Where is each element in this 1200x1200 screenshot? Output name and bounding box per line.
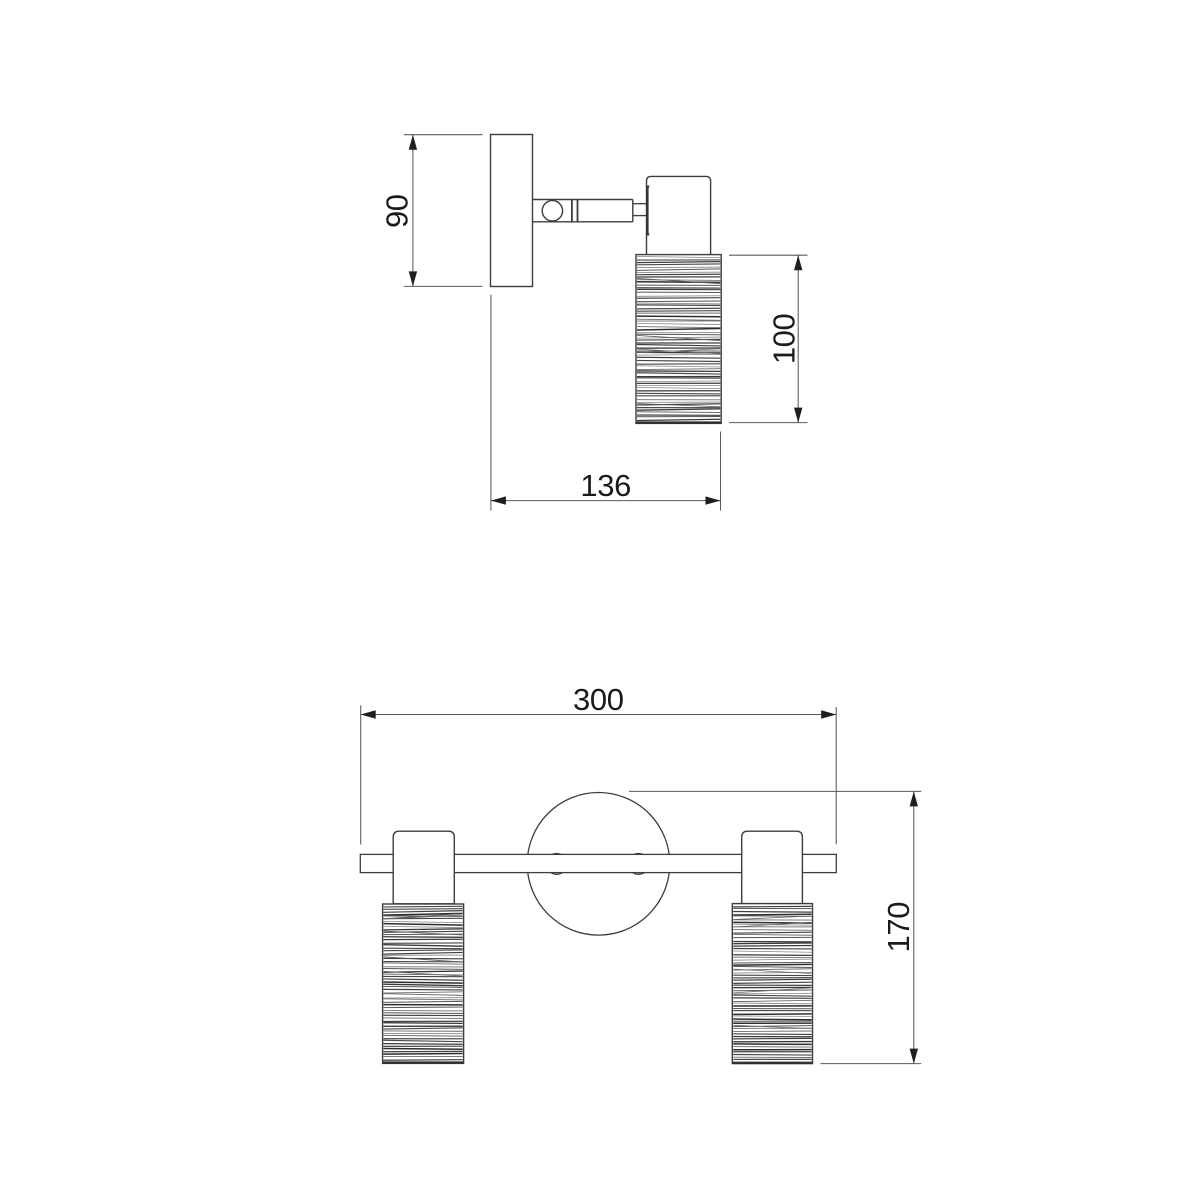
svg-text:300: 300 [573, 682, 624, 717]
svg-text:100: 100 [766, 313, 801, 364]
svg-text:170: 170 [881, 902, 916, 953]
svg-text:90: 90 [379, 194, 414, 228]
svg-text:136: 136 [580, 468, 631, 503]
